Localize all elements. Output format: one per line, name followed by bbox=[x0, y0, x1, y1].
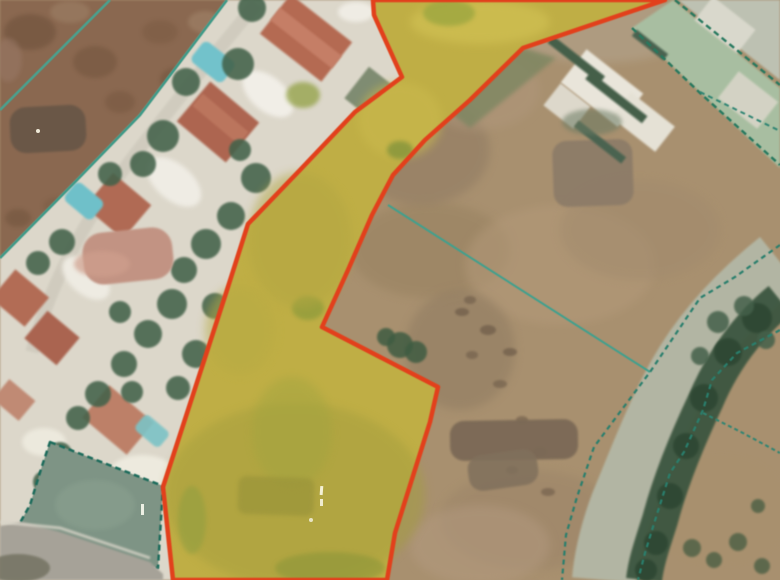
driveway-white bbox=[338, 2, 374, 22]
tree bbox=[635, 559, 657, 580]
plough-speck bbox=[455, 308, 469, 316]
tree bbox=[729, 533, 747, 551]
field-left-patch bbox=[73, 46, 117, 78]
tree bbox=[98, 162, 122, 186]
redaction-blob-dark bbox=[9, 104, 87, 154]
parcel-label-mark bbox=[309, 518, 313, 522]
tree bbox=[49, 229, 75, 255]
redaction-blob-field bbox=[552, 139, 634, 208]
tree bbox=[171, 257, 197, 283]
tree bbox=[377, 328, 395, 346]
tree bbox=[111, 351, 137, 377]
plough-speck bbox=[493, 380, 507, 388]
tree bbox=[109, 301, 131, 323]
subject-parcel-grass bbox=[248, 172, 352, 308]
tree bbox=[706, 552, 722, 568]
tree bbox=[657, 483, 683, 509]
tree bbox=[157, 289, 187, 319]
tree bbox=[130, 151, 156, 177]
field-left-patch bbox=[142, 20, 178, 44]
redaction-blob-salmon-hi bbox=[74, 251, 130, 277]
subject-parcel-grass bbox=[252, 377, 332, 487]
tree bbox=[66, 406, 90, 430]
tree bbox=[172, 68, 200, 96]
satellite-map-canvas[interactable] bbox=[0, 0, 780, 580]
tree bbox=[166, 376, 190, 400]
subject-parcel-grass bbox=[423, 0, 475, 26]
tree bbox=[134, 320, 162, 348]
tree bbox=[683, 539, 701, 557]
tree bbox=[751, 499, 765, 513]
redaction-blob-dot bbox=[36, 129, 40, 133]
tree bbox=[191, 229, 221, 259]
field-left-patch bbox=[5, 209, 31, 227]
tree bbox=[147, 120, 179, 152]
tree bbox=[707, 311, 729, 333]
field-left-patch bbox=[50, 1, 90, 23]
green-parcel-highlight bbox=[55, 480, 135, 530]
parcel-label-mark bbox=[141, 504, 144, 515]
tree bbox=[26, 251, 50, 275]
plough-speck bbox=[466, 351, 478, 359]
plough-speck bbox=[464, 296, 476, 304]
tree bbox=[734, 296, 754, 316]
parcel-label-mark bbox=[320, 499, 323, 506]
field-left-patch bbox=[105, 91, 135, 113]
tree bbox=[217, 202, 245, 230]
tree bbox=[754, 558, 770, 574]
plough-speck bbox=[503, 348, 517, 356]
building-shadow bbox=[562, 109, 622, 135]
plough-speck bbox=[541, 488, 555, 496]
tree bbox=[405, 341, 427, 363]
tree bbox=[690, 384, 718, 412]
tree bbox=[222, 48, 254, 80]
subject-parcel-grass bbox=[237, 476, 314, 517]
plough-speck bbox=[480, 325, 496, 335]
parcel-label-mark bbox=[320, 486, 324, 495]
tree bbox=[121, 381, 143, 403]
subject-parcel-grass bbox=[286, 82, 320, 108]
tree bbox=[85, 381, 111, 407]
tree bbox=[691, 347, 709, 365]
map-viewport bbox=[0, 0, 780, 580]
tree bbox=[229, 139, 251, 161]
subject-parcel-grass bbox=[178, 486, 206, 554]
